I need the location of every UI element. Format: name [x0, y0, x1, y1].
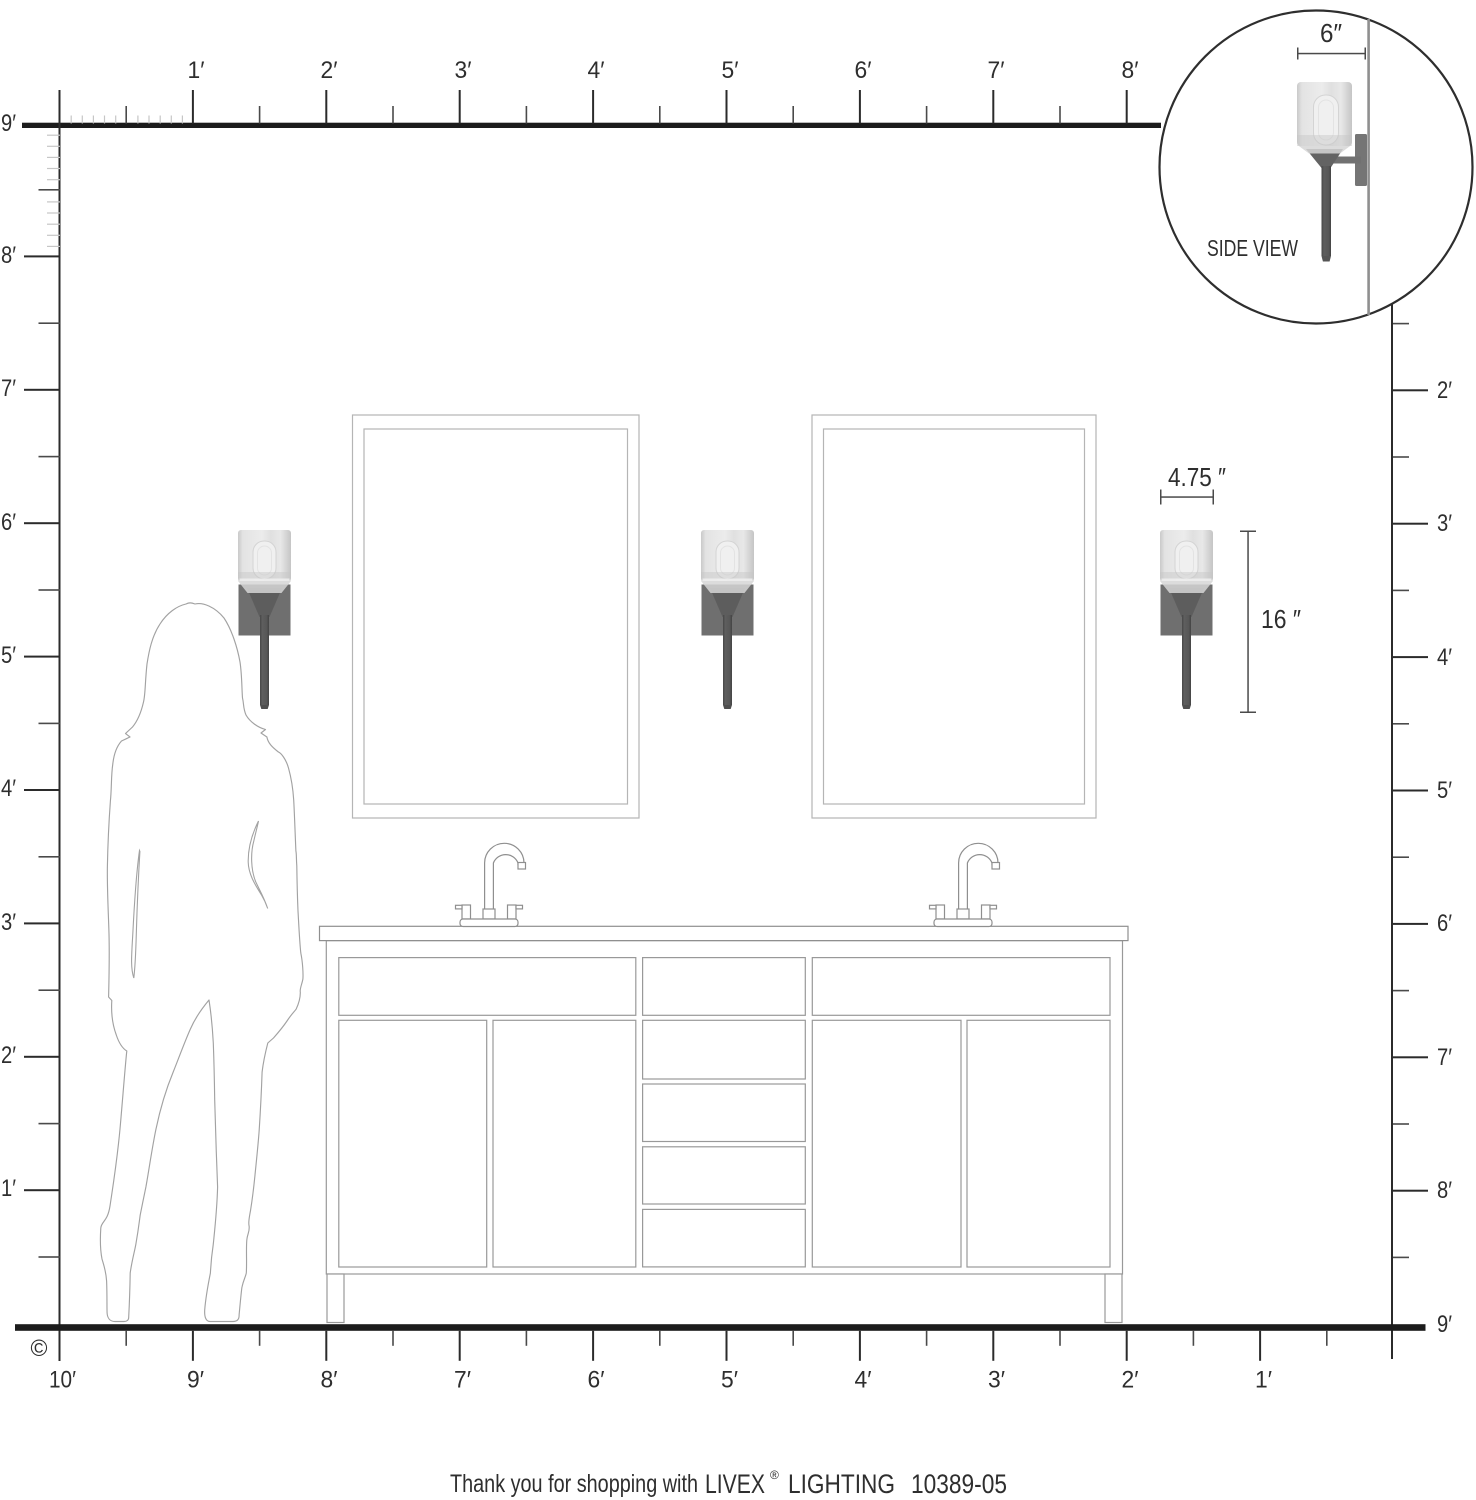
svg-text:4′: 4′ — [1437, 644, 1452, 671]
svg-text:Thank you for shopping with: Thank you for shopping with — [450, 1470, 698, 1498]
svg-text:3′: 3′ — [1, 909, 16, 936]
svg-text:3′: 3′ — [988, 1367, 1005, 1394]
svg-text:1′: 1′ — [188, 57, 205, 84]
svg-text:LIVEX: LIVEX — [705, 1469, 765, 1499]
svg-text:9′: 9′ — [187, 1367, 204, 1394]
svg-text:1′: 1′ — [1, 1175, 16, 1202]
svg-text:16 ″: 16 ″ — [1261, 604, 1301, 634]
svg-text:©: © — [31, 1335, 48, 1361]
svg-text:2′: 2′ — [1122, 1367, 1139, 1394]
svg-text:8′: 8′ — [1, 242, 16, 269]
svg-text:2′: 2′ — [1, 1042, 16, 1069]
svg-text:7′: 7′ — [454, 1367, 471, 1394]
svg-text:SIDE VIEW: SIDE VIEW — [1207, 235, 1299, 261]
svg-text:6′: 6′ — [1, 509, 16, 536]
svg-text:9′: 9′ — [1437, 1311, 1452, 1338]
svg-text:4′: 4′ — [855, 1367, 872, 1394]
svg-text:6′: 6′ — [1437, 910, 1452, 937]
svg-text:4′: 4′ — [1, 775, 16, 802]
svg-text:LIGHTING: LIGHTING — [788, 1469, 895, 1499]
svg-text:5′: 5′ — [722, 57, 739, 84]
svg-text:7′: 7′ — [1437, 1044, 1452, 1071]
svg-text:8′: 8′ — [1122, 57, 1139, 84]
svg-text:7′: 7′ — [988, 57, 1005, 84]
svg-text:1′: 1′ — [1255, 1367, 1272, 1394]
svg-text:9′: 9′ — [1, 110, 16, 137]
svg-text:6′: 6′ — [588, 1367, 605, 1394]
svg-text:3′: 3′ — [455, 57, 472, 84]
svg-text:3′: 3′ — [1437, 510, 1452, 537]
svg-text:5′: 5′ — [721, 1367, 738, 1394]
svg-text:8′: 8′ — [321, 1367, 338, 1394]
svg-text:2′: 2′ — [321, 57, 338, 84]
svg-text:5′: 5′ — [1, 642, 16, 669]
svg-text:5′: 5′ — [1437, 777, 1452, 804]
svg-text:6″: 6″ — [1320, 18, 1342, 48]
svg-text:7′: 7′ — [1, 375, 16, 402]
svg-text:4′: 4′ — [588, 57, 605, 84]
svg-text:8′: 8′ — [1437, 1177, 1452, 1204]
svg-text:®: ® — [770, 1468, 779, 1482]
svg-text:4.75 ″: 4.75 ″ — [1168, 462, 1226, 492]
svg-text:6′: 6′ — [855, 57, 872, 84]
svg-text:10′: 10′ — [49, 1367, 76, 1394]
svg-text:10389-05: 10389-05 — [911, 1469, 1007, 1499]
svg-text:2′: 2′ — [1437, 377, 1452, 404]
